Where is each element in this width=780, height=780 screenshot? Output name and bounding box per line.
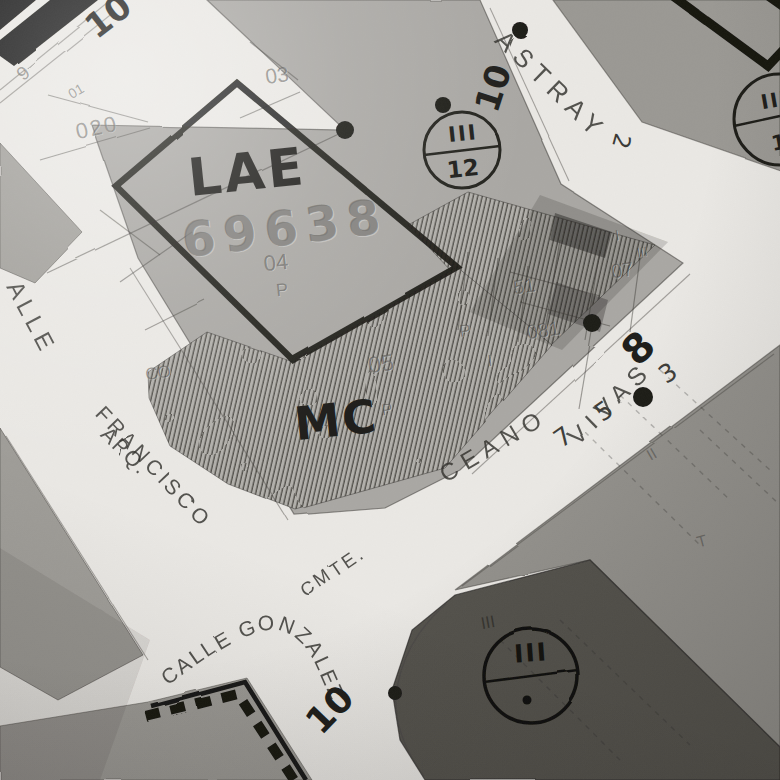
parcel-code-07: 07 [610, 259, 635, 282]
parcel-code-p2: P [381, 401, 393, 418]
zone-marker-tr-roman: III [759, 88, 780, 113]
parcel-code-iii-small: III [636, 245, 649, 259]
parcel-code-co: CO [144, 363, 172, 383]
zone-label-lae: LAE [186, 140, 309, 204]
parcel-code-p1: P [275, 280, 289, 299]
parcel-code-04: 04 [263, 251, 290, 275]
parcel-code-03: 03 [264, 63, 290, 87]
zone-marker-br-roman: III [513, 639, 549, 666]
parcel-code-p3: P [458, 322, 471, 340]
parcel-code-51: 51 [512, 275, 537, 298]
zone-marker-12-roman: III [447, 122, 478, 146]
zone-marker-12-number: 12 [446, 156, 480, 182]
parcel-code-05: 05 [367, 351, 396, 377]
parcel-code-081: 081 [525, 318, 561, 342]
film-grain [0, 0, 780, 780]
map-drawing: ASTRAY CEANO VIVAS CMTE. CALLE GONZALEZ … [0, 0, 780, 780]
map-photo: ASTRAY CEANO VIVAS CMTE. CALLE GONZALEZ … [0, 0, 780, 780]
parcel-code-iii-dark: III [480, 614, 497, 632]
zone-label-mc: MC [292, 393, 380, 447]
